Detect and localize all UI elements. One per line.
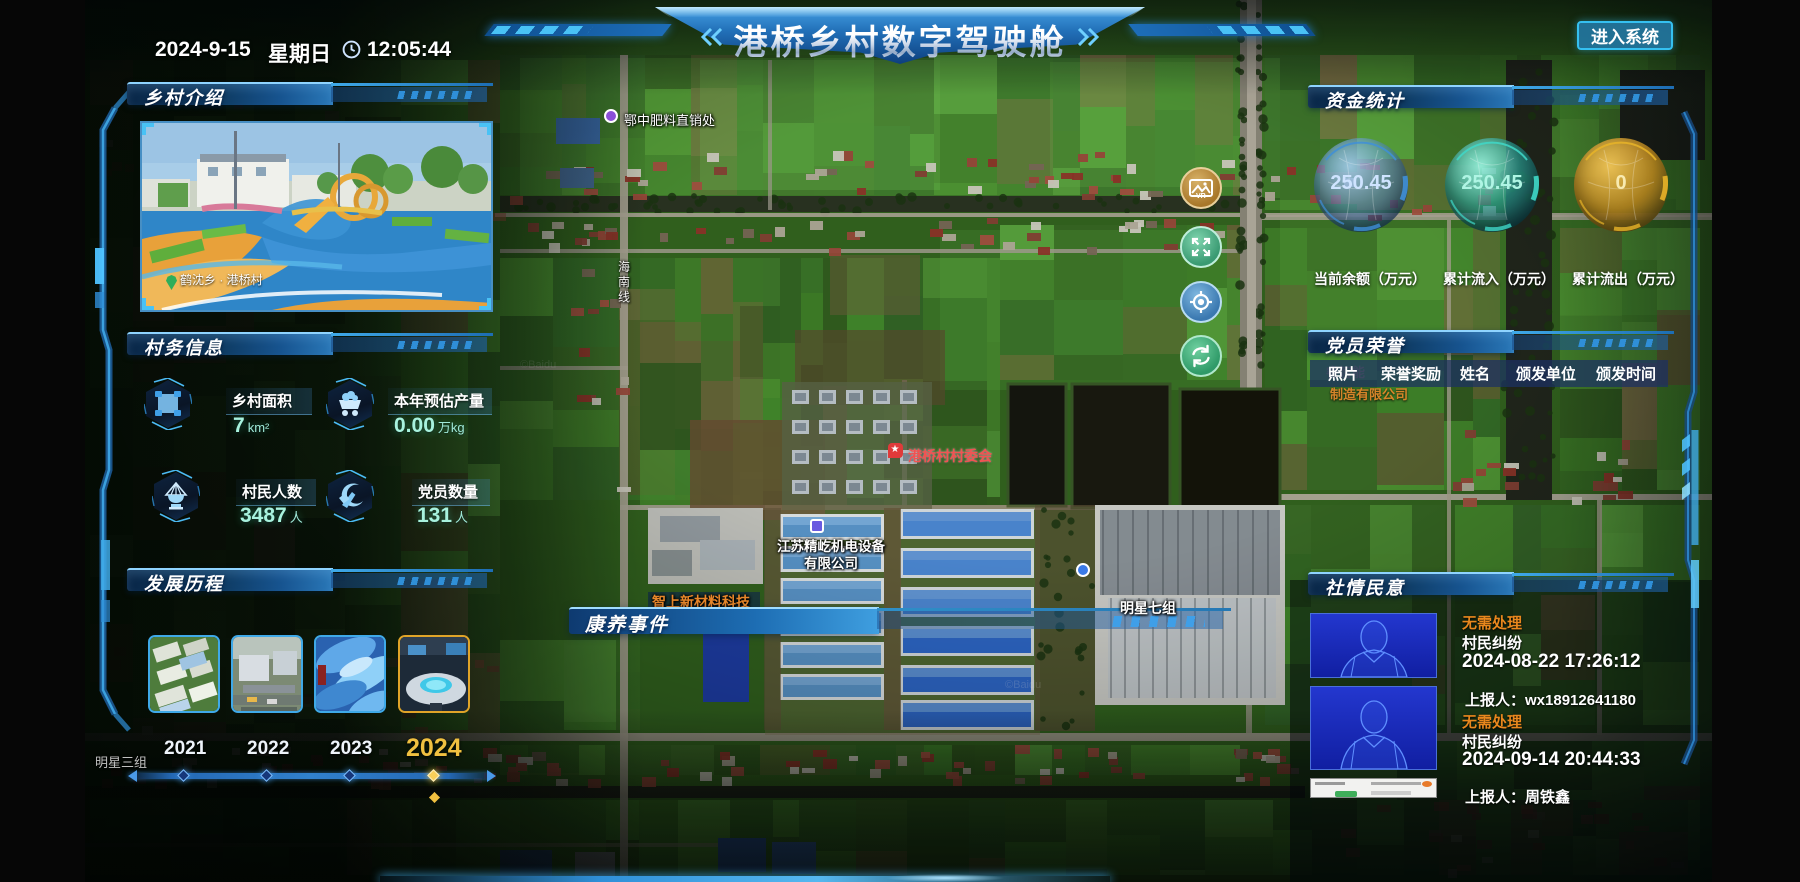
svg-text:VR: VR	[1196, 193, 1206, 199]
